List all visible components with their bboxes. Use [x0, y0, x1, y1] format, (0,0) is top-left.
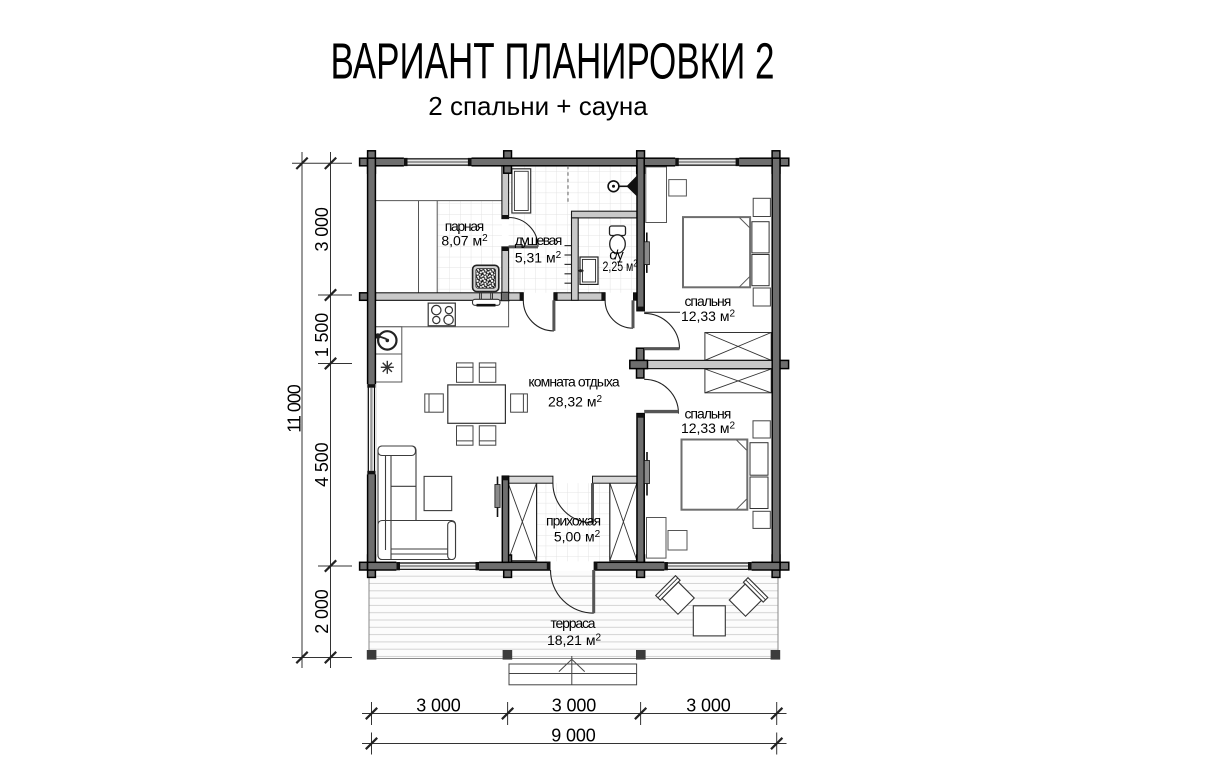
- svg-text:спальня: спальня: [685, 293, 732, 309]
- svg-text:2 000: 2 000: [312, 589, 332, 634]
- svg-text:3 000: 3 000: [552, 696, 597, 716]
- svg-text:1 500: 1 500: [312, 313, 332, 358]
- svg-text:28,32 м2: 28,32 м2: [548, 394, 603, 410]
- svg-text:душевая: душевая: [515, 232, 563, 248]
- svg-text:3 000: 3 000: [686, 696, 731, 716]
- svg-text:5,31 м2: 5,31 м2: [515, 250, 562, 266]
- svg-text:9 000: 9 000: [551, 726, 596, 746]
- svg-text:терраса: терраса: [550, 615, 595, 631]
- svg-text:3 000: 3 000: [416, 696, 461, 716]
- svg-text:комната отдыха: комната отдыха: [528, 374, 620, 390]
- svg-text:3 000: 3 000: [312, 207, 332, 252]
- svg-text:8,07 м2: 8,07 м2: [441, 233, 488, 249]
- svg-text:ВАРИАНТ ПЛАНИРОВКИ 2: ВАРИАНТ ПЛАНИРОВКИ 2: [331, 33, 775, 90]
- svg-text:5,00 м2: 5,00 м2: [554, 529, 601, 545]
- svg-text:18,21 м2: 18,21 м2: [547, 632, 602, 648]
- svg-text:4 500: 4 500: [312, 442, 332, 487]
- svg-text:прихожая: прихожая: [546, 512, 601, 528]
- svg-text:12,33 м2: 12,33 м2: [681, 420, 736, 436]
- svg-text:12,33 м2: 12,33 м2: [681, 308, 736, 324]
- svg-text:парная: парная: [445, 218, 485, 234]
- svg-text:2 спальни + сауна: 2 спальни + сауна: [428, 91, 648, 121]
- svg-text:11 000: 11 000: [285, 384, 305, 433]
- svg-text:с/у: с/у: [609, 247, 623, 263]
